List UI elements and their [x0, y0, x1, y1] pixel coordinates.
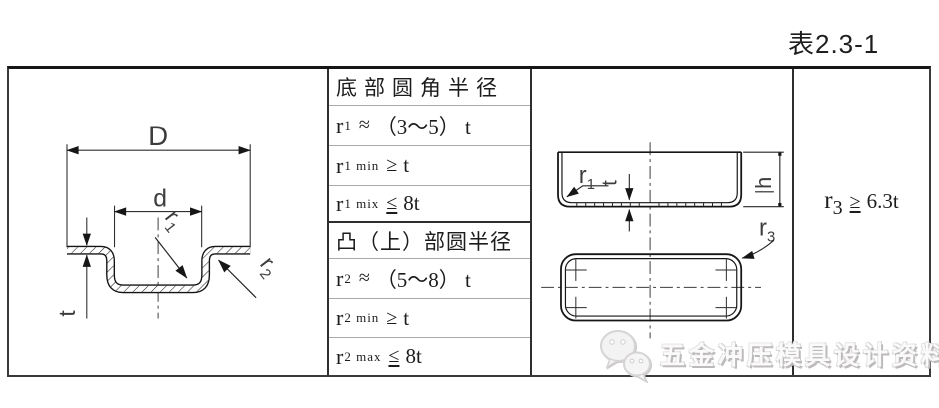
formula-rhs: （5～8） t [376, 264, 471, 294]
formula-op: ≥ [386, 307, 397, 330]
formula-sub: 1 [344, 118, 352, 134]
formula-rhs: （3～5） t [376, 111, 471, 141]
row-top-radius-header: 凸（上）部圆半径 [329, 223, 530, 259]
row-text: 底部圆角半径 [336, 72, 504, 102]
formula-column: 底部圆角半径 r1≈（3～5） t r1 min≥t r1 mix≤8t 凸（上… [329, 69, 532, 375]
label-r3-base: r [759, 214, 767, 241]
formula-base: r [336, 113, 343, 139]
formula-op: ≤ [386, 192, 397, 215]
row-r2-approx: r2≈（5～8） t [329, 259, 530, 299]
formula-op: ≥ [850, 191, 861, 213]
row-r2-max: r2 max≤8t [329, 338, 530, 375]
formula-base: r [336, 305, 343, 331]
corner-center-marks [565, 259, 737, 318]
formula-sub: 2 max [344, 349, 381, 365]
label-r1-view: r1 [579, 162, 595, 193]
dim-tick-top [778, 153, 781, 156]
cross-section-drawing: D d t r1 r2 [9, 69, 327, 375]
formula-op: ≈ [359, 267, 370, 290]
formula-rhs: t [403, 306, 409, 331]
label-r1-sub: 1 [587, 177, 595, 193]
formula-op: ≤ [388, 345, 399, 368]
formula-sub: 3 [833, 197, 843, 219]
watermark-text: 五金冲压模具设计资料 [660, 336, 939, 372]
formula-rhs: 8t [405, 344, 421, 369]
dim-tick-bottom [778, 203, 781, 206]
label-h-text: h [751, 177, 776, 189]
wechat-icon [596, 326, 654, 382]
row-r1-max: r1 mix≤8t [329, 186, 530, 223]
label-h: h [751, 177, 776, 189]
label-t-text: t [54, 310, 80, 317]
watermark: 五金冲压模具设计资料 [596, 326, 939, 382]
label-d: d [153, 186, 167, 213]
label-t-view: t [598, 180, 621, 186]
formula-op: ≥ [386, 154, 397, 177]
formula-base: r [824, 187, 832, 214]
label-d-text: d [153, 186, 167, 213]
row-r1-approx: r1≈（3～5） t [329, 106, 530, 146]
side-view-annotations [567, 152, 784, 231]
row-r2-min: r2 min≥t [329, 299, 530, 338]
label-D-text: D [148, 120, 168, 151]
label-r2: r2 [251, 251, 285, 283]
formula-rhs: 6.3t [867, 189, 899, 213]
cross-section-cell: D d t r1 r2 [9, 69, 329, 375]
formula-sub: 2 min [344, 310, 379, 326]
formula-rhs: 8t [403, 191, 419, 216]
formula-sub: 1 min [344, 158, 379, 174]
label-r1-base: r [579, 162, 587, 189]
label-D: D [148, 120, 168, 151]
row-text: 凸（上）部圆半径 [336, 226, 512, 256]
label-t: t [54, 310, 80, 317]
formula-rhs: t [403, 153, 409, 178]
table-caption: 表2.3-1 [788, 24, 879, 61]
formula-base: r [336, 153, 343, 179]
row-bottom-radius-header: 底部圆角半径 [329, 69, 530, 106]
row-r1-min: r1 min≥t [329, 146, 530, 186]
formula-base: r [336, 266, 343, 292]
formula-sub: 1 mix [344, 196, 379, 212]
formula-base: r [336, 191, 343, 217]
formula-op: ≈ [359, 114, 370, 137]
label-t-text: t [598, 180, 621, 186]
formula-sub: 2 [344, 271, 352, 287]
formula-base: r [336, 344, 343, 370]
